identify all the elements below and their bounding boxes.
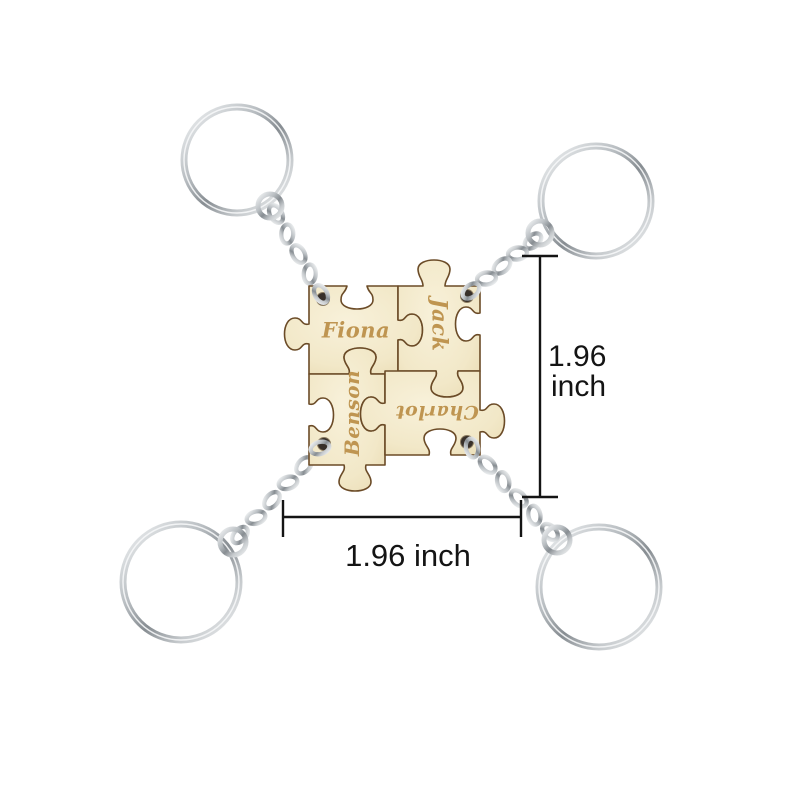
split-ring-highlight [541, 146, 651, 256]
split-ring-highlight [539, 527, 659, 647]
vertical-dimension-value: 1.96 [548, 340, 606, 373]
horizontal-dimension: 1.96 inch [283, 500, 521, 573]
keychain-bottom-right [477, 454, 659, 647]
vertical-dimension-unit: inch [551, 370, 606, 403]
engraving-fiona: Fiona [321, 318, 390, 343]
chain-link [303, 264, 316, 284]
chain-link [261, 489, 283, 511]
vertical-dimension: 1.96 inch [522, 256, 606, 497]
chain-link [496, 471, 511, 492]
chain-link [245, 509, 267, 526]
keychain-bottom-left [123, 454, 315, 640]
chain-link [277, 474, 299, 491]
chain-link [508, 487, 530, 509]
product-photo-svg: Fiona Jack Benson Charlot 1.96 inch 1.96… [0, 0, 800, 800]
product-photo: Fiona Jack Benson Charlot 1.96 inch 1.96… [0, 0, 800, 800]
horizontal-dimension-label: 1.96 inch [345, 538, 471, 573]
keychain-top-right [476, 146, 651, 286]
chain-link [289, 243, 309, 265]
engraving-benson: Benson [340, 370, 364, 457]
keychain-top-left [184, 107, 316, 284]
chain-link [527, 505, 542, 526]
engraving-jack: Jack [428, 295, 453, 352]
engraving-charlot: Charlot [395, 401, 478, 423]
chain-link [477, 454, 499, 476]
chain-link [281, 224, 294, 244]
